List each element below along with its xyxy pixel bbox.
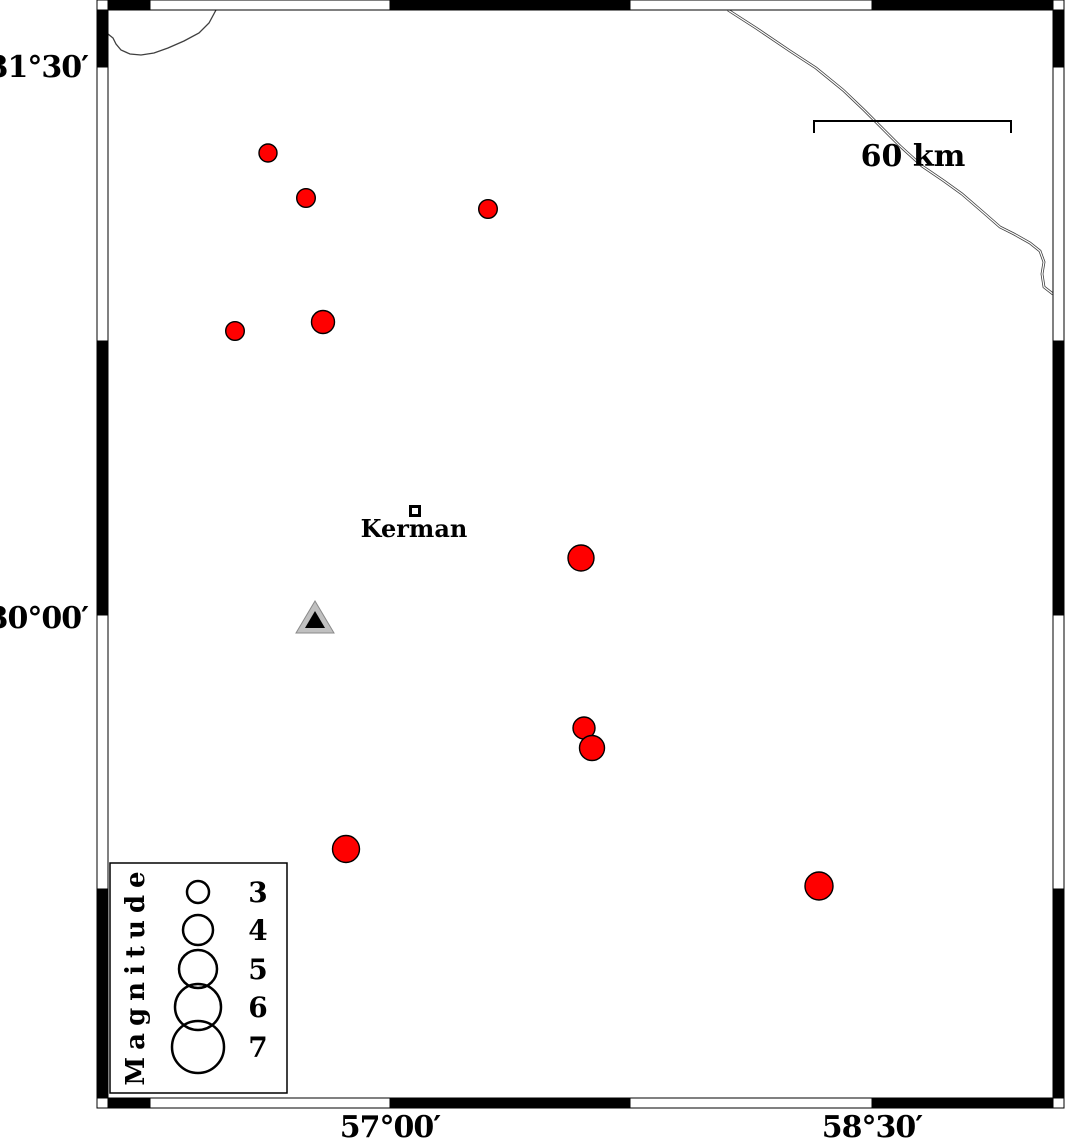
frame-segment-right — [1053, 889, 1064, 1098]
frame-segment-left — [97, 889, 108, 1098]
frame-segment-left — [97, 341, 108, 615]
frame-segment-left — [97, 10, 108, 67]
frame-corner-cell — [97, 1098, 108, 1108]
lon-label-57-00: 57°00′ — [340, 1110, 441, 1145]
frame-segment-right — [1053, 615, 1064, 889]
city-square-marker — [411, 507, 420, 516]
city-label: Kerman — [361, 514, 468, 543]
earthquake-epicenter — [333, 836, 360, 863]
frame-segment-left — [97, 615, 108, 889]
legend-magnitude-number: 4 — [248, 914, 267, 947]
frame-segment-bottom — [108, 1098, 150, 1108]
seismicity-map-figure: 60 km Kerman 34567Magnitude 31°30′ 30°00… — [0, 0, 1066, 1147]
frame-corner-cell — [97, 0, 108, 10]
earthquake-epicenter — [580, 736, 605, 761]
earthquake-epicenter — [568, 545, 594, 571]
earthquake-epicenter — [479, 200, 498, 219]
frame-segment-bottom — [630, 1098, 872, 1108]
frame-segment-top — [150, 0, 390, 10]
earthquake-epicenter — [259, 144, 277, 162]
magnitude-legend: 34567Magnitude — [110, 863, 287, 1093]
frame-corner-cell — [1053, 0, 1064, 10]
lat-label-30-00: 30°00′ — [0, 601, 89, 636]
lat-label-31-30: 31°30′ — [0, 50, 89, 85]
earthquake-epicenter — [226, 322, 245, 341]
earthquake-epicenter — [297, 189, 316, 208]
frame-segment-left — [97, 67, 108, 341]
map-canvas: 60 km Kerman 34567Magnitude 31°30′ 30°00… — [0, 0, 1066, 1147]
frame-segment-right — [1053, 10, 1064, 67]
legend-magnitude-number: 6 — [248, 991, 267, 1024]
legend-title: Magnitude — [121, 864, 151, 1085]
earthquake-epicenter — [805, 872, 833, 900]
legend-magnitude-number: 3 — [248, 876, 267, 909]
frame-segment-top — [108, 0, 150, 10]
frame-segment-top — [630, 0, 872, 10]
lon-label-58-30: 58°30′ — [822, 1110, 923, 1145]
frame-segment-right — [1053, 341, 1064, 615]
frame-segment-bottom — [150, 1098, 390, 1108]
frame-segment-top — [390, 0, 630, 10]
frame-corner-cell — [1053, 1098, 1064, 1108]
frame-segment-bottom — [872, 1098, 1053, 1108]
legend-magnitude-number: 5 — [248, 953, 267, 986]
legend-magnitude-number: 7 — [248, 1031, 267, 1064]
frame-segment-right — [1053, 67, 1064, 341]
frame-segment-bottom — [390, 1098, 630, 1108]
earthquake-epicenter — [312, 311, 335, 334]
frame-segment-top — [872, 0, 1053, 10]
scale-bar-label: 60 km — [861, 139, 966, 174]
